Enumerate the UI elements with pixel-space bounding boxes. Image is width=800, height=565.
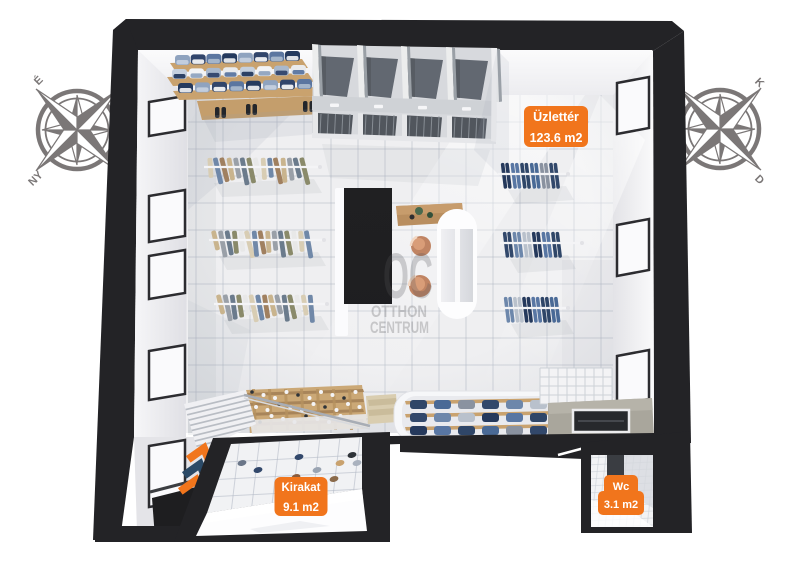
- svg-text:123.6 m2: 123.6 m2: [530, 131, 583, 145]
- svg-text:9.1 m2: 9.1 m2: [283, 502, 319, 514]
- svg-text:Wc: Wc: [613, 481, 630, 493]
- svg-text:3.1 m2: 3.1 m2: [604, 499, 638, 511]
- svg-text:Kirakat: Kirakat: [282, 482, 321, 494]
- svg-text:CENTRUM: CENTRUM: [370, 318, 429, 337]
- svg-text:Üzlettér: Üzlettér: [533, 109, 579, 124]
